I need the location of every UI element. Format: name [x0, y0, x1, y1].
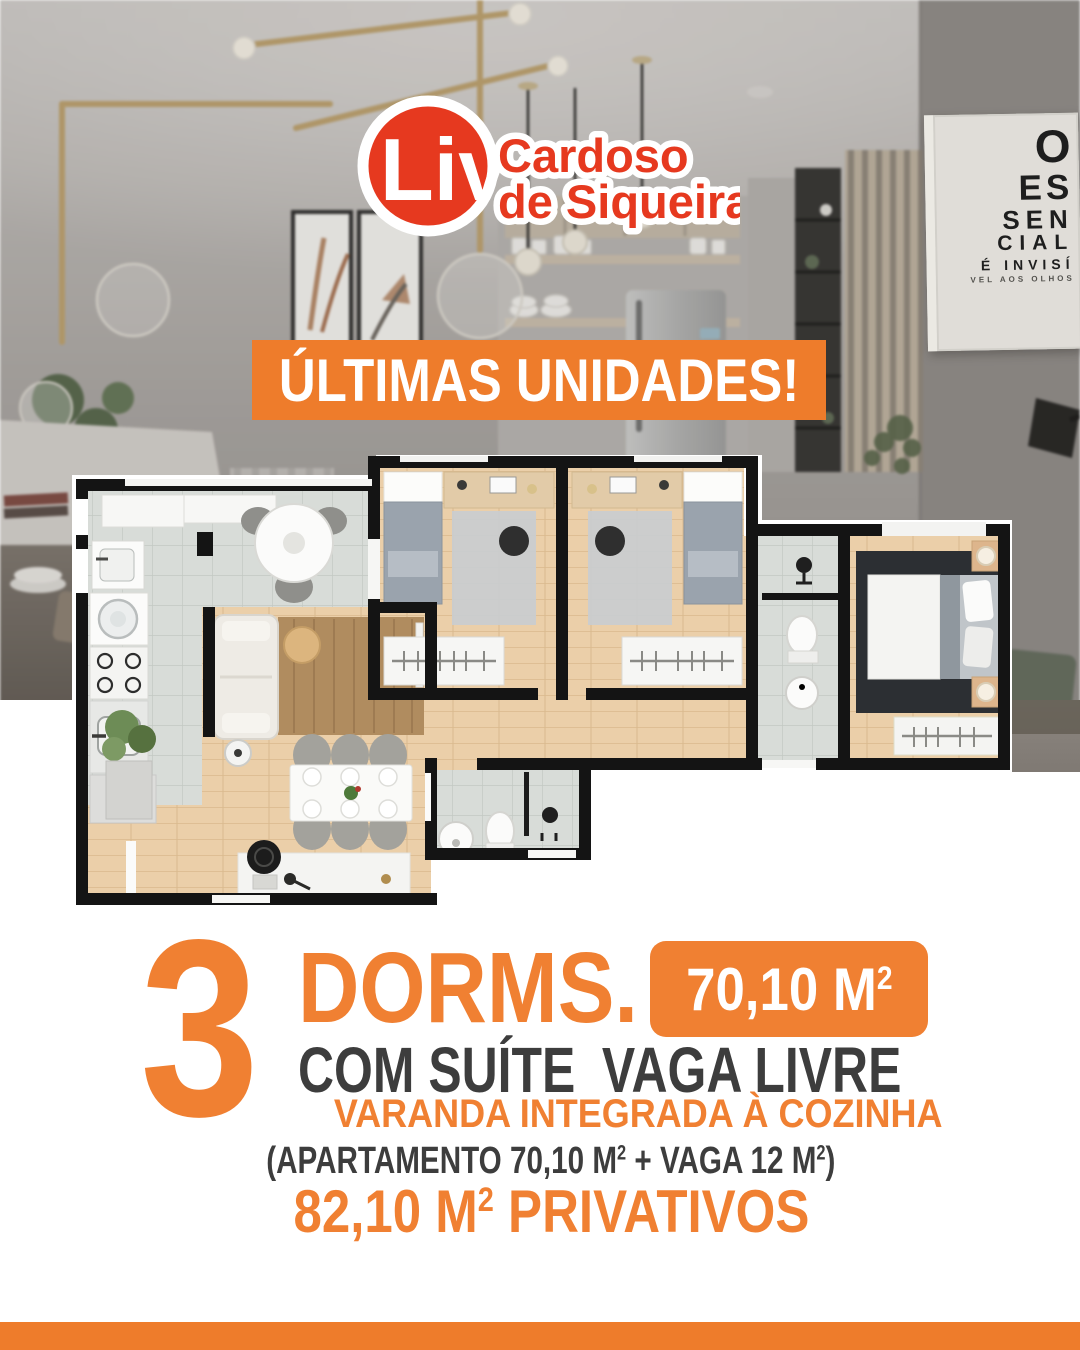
bedroom1-pillow — [384, 472, 442, 502]
coffee-table — [284, 627, 320, 663]
poster-line: ES — [934, 170, 1074, 208]
suite-shower — [796, 557, 812, 573]
suite-sink — [786, 677, 818, 709]
footer-orange-bar — [0, 1322, 1080, 1350]
balcony-sink — [247, 840, 281, 874]
social-shower — [542, 807, 558, 823]
poster-line: VEL AOS OLHOS — [936, 275, 1075, 286]
logo-brand-text: Liv — [380, 120, 507, 219]
varanda-label: VARANDA INTEGRADA À COZINHA — [334, 1094, 943, 1134]
area-badge-sup: 2 — [877, 960, 893, 996]
varanda-line: VARANDA INTEGRADA À COZINHA — [300, 1094, 940, 1134]
master-duvet — [868, 575, 940, 679]
balcony-plant — [102, 710, 156, 819]
breakdown-part2: + VAGA 12 M — [626, 1140, 816, 1182]
floor-plan — [62, 455, 1012, 920]
desk-shadow — [1008, 700, 1080, 734]
master-headboard — [882, 522, 986, 536]
banner-text: ÚLTIMAS UNIDADES! — [279, 346, 799, 415]
dining-area — [290, 734, 412, 850]
poster-line: O — [933, 123, 1073, 172]
bedroom2-chair — [595, 526, 625, 556]
liv-logo: Liv Cardoso de Siqueira — [350, 80, 740, 255]
eye-chart-poster: O ES SEN CIAL É INVISÍ VEL AOS OLHOS — [924, 113, 1080, 352]
breakdown-line: (APARTAMENTO 70,10 M2 + VAGA 12 M2) — [110, 1142, 992, 1180]
bedroom2-rug — [588, 511, 672, 625]
total-part1: 82,10 M — [293, 1178, 477, 1245]
shower-divider — [524, 772, 529, 836]
breakdown-part3: ) — [826, 1140, 836, 1182]
master-runner — [940, 575, 960, 679]
bedroom1-rug — [452, 511, 536, 625]
last-units-banner: ÚLTIMAS UNIDADES! — [252, 340, 826, 420]
balcony-door-frame — [126, 841, 136, 893]
logo-name-line2: de Siqueira — [498, 175, 740, 228]
total-area-line: 82,10 M2 PRIVATIVOS — [110, 1182, 992, 1242]
total-part2: PRIVATIVOS — [493, 1178, 808, 1245]
area-badge-value: 70,10 M — [686, 956, 877, 1023]
ad-poster: O ES SEN CIAL É INVISÍ VEL AOS OLHOS Liv… — [0, 0, 1080, 1350]
photo-right-edge — [1000, 700, 1080, 772]
poster-line: SEN — [935, 205, 1074, 234]
dorms-count: 3 — [140, 928, 259, 1130]
breakdown-part1: (APARTAMENTO 70,10 M — [266, 1140, 617, 1182]
area-badge: 70,10 M2 — [650, 941, 928, 1037]
bedroom1-chair — [499, 526, 529, 556]
poster-line: É INVISÍ — [935, 256, 1074, 273]
suite-toilet — [787, 616, 817, 654]
poster-line: CIAL — [935, 232, 1074, 256]
dorms-label: DORMS. — [298, 938, 638, 1038]
breakdown-sup2: 2 — [817, 1141, 826, 1164]
bedroom2-pillow — [684, 472, 742, 502]
total-sup: 2 — [477, 1181, 493, 1219]
